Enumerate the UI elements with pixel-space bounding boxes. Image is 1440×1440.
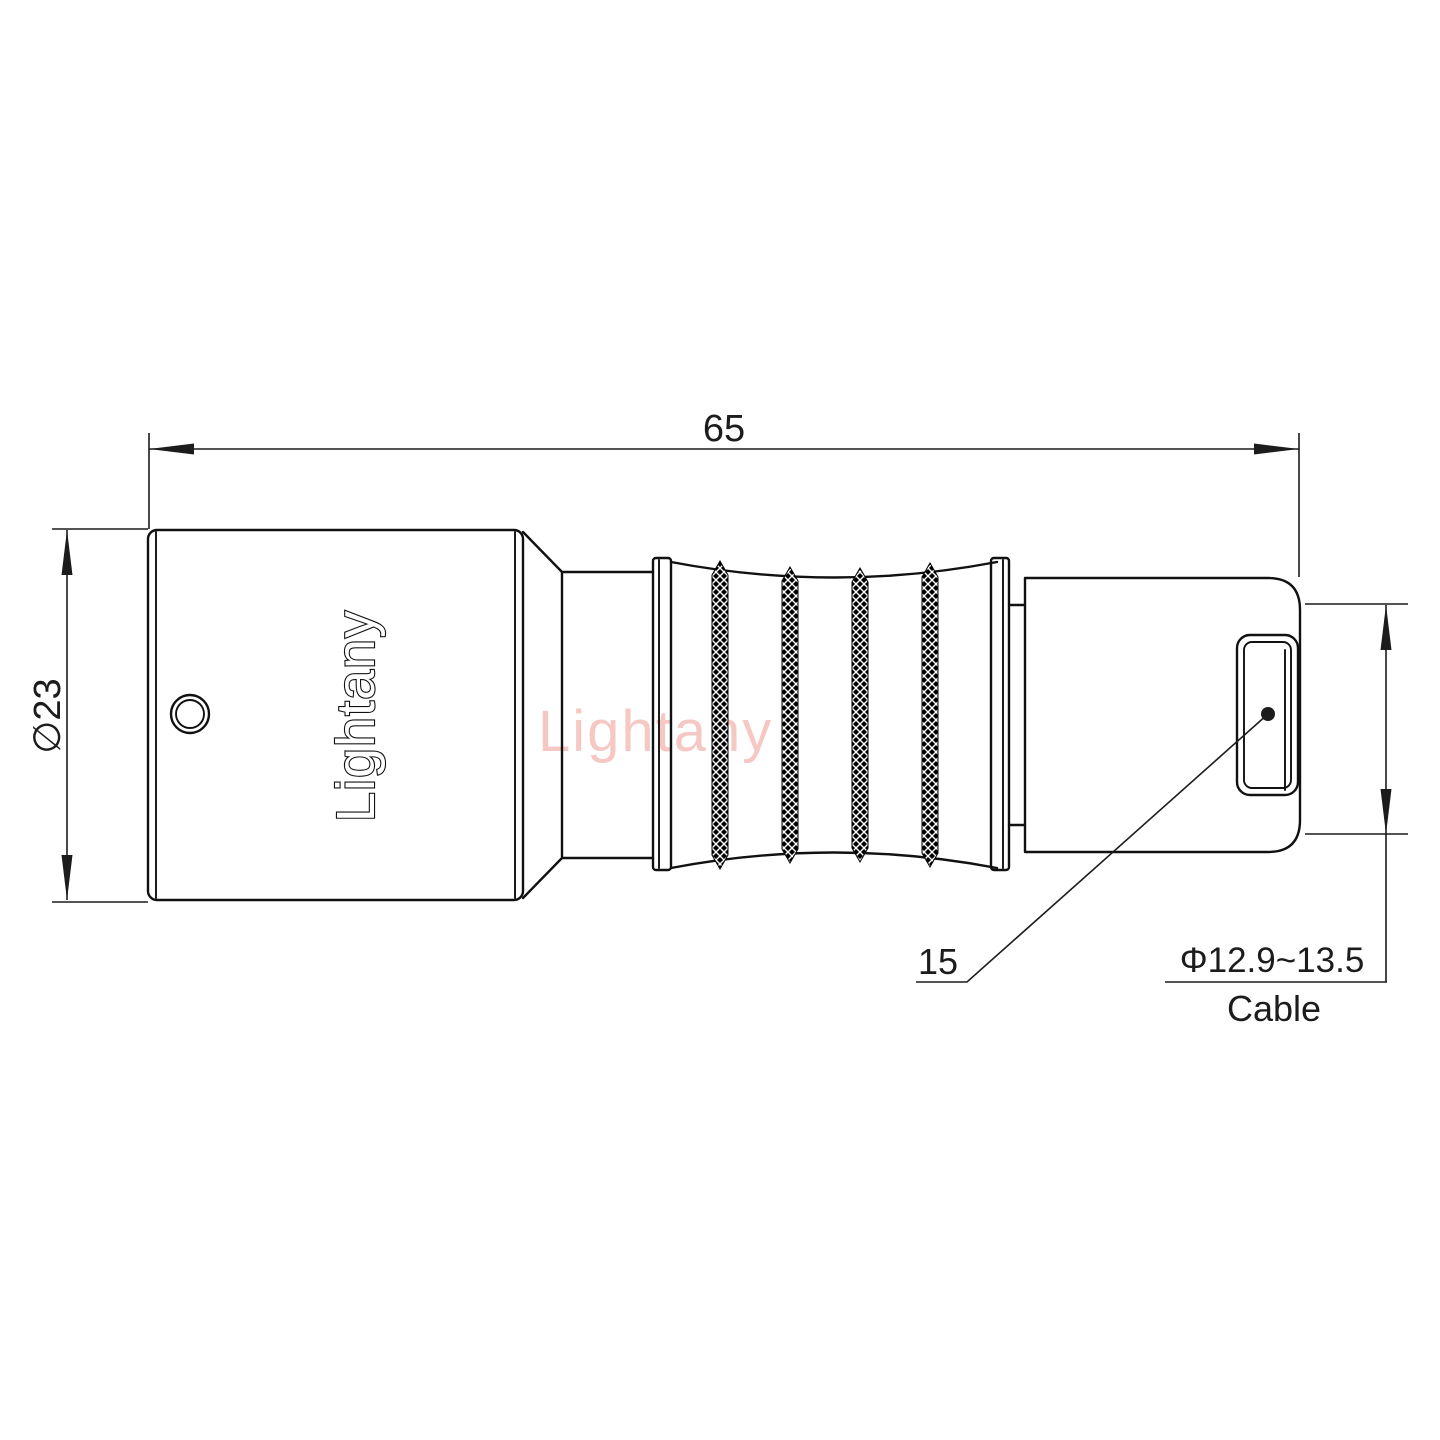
- leader-dot: [1261, 707, 1275, 721]
- arrowhead-cable-bottom: [1381, 789, 1392, 834]
- dim-text-shell-diameter: ∅23: [27, 678, 69, 753]
- arrowhead-left: [149, 444, 194, 455]
- arrowhead-bottom: [62, 855, 73, 900]
- dim-text-cable-label: Cable: [1227, 988, 1321, 1029]
- knurl-band-2: [782, 567, 798, 863]
- knurl-band-3: [852, 568, 868, 862]
- arrowhead-cable-top: [1381, 605, 1392, 650]
- dim-text-cable-range: Φ12.9~13.5: [1180, 941, 1365, 980]
- extension-lines-cable: [1305, 604, 1408, 834]
- technical-drawing-page: Lightany Lightany: [0, 0, 1440, 1440]
- dim-text-overall-length: 65: [703, 408, 745, 450]
- arrowhead-right: [1254, 444, 1299, 455]
- knurl-band-1: [712, 561, 728, 869]
- knurl-band-4: [922, 563, 938, 867]
- connector-side-view-drawing: Lightany Lightany: [0, 0, 1440, 1440]
- dim-text-nut-length: 15: [918, 941, 958, 982]
- brand-engraving: Lightany: [326, 610, 386, 822]
- arrowhead-top: [62, 530, 73, 575]
- watermark-text: Lightany: [538, 699, 773, 764]
- dimension-shell-diameter: ∅23: [27, 529, 148, 902]
